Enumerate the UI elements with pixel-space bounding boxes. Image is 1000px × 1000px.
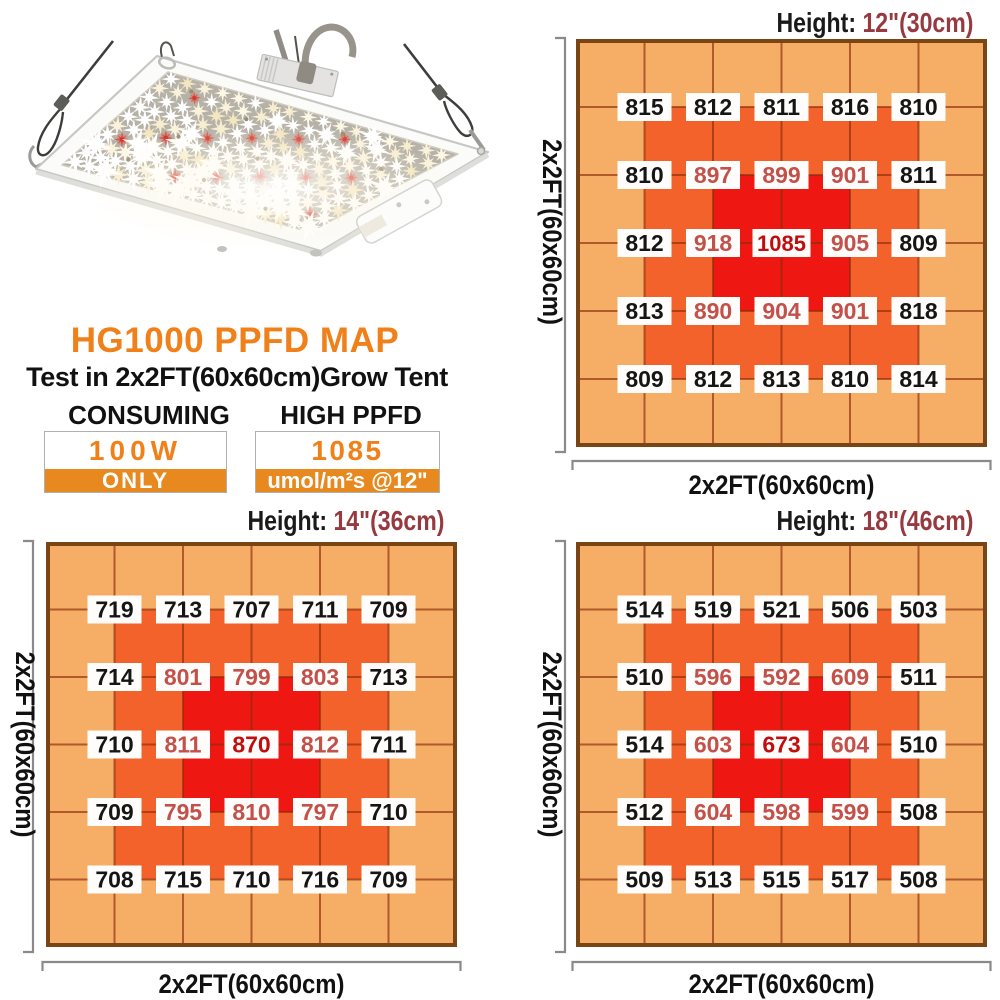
svg-text:904: 904	[762, 298, 801, 324]
svg-text:801: 801	[164, 664, 203, 690]
svg-text:711: 711	[370, 732, 407, 758]
svg-text:890: 890	[694, 298, 732, 324]
svg-text:714: 714	[95, 664, 134, 690]
svg-text:708: 708	[95, 867, 134, 893]
svg-text:508: 508	[899, 799, 938, 825]
svg-text:810: 810	[232, 799, 270, 825]
svg-text:711: 711	[301, 597, 338, 623]
svg-text:513: 513	[694, 867, 732, 893]
svg-text:604: 604	[831, 732, 870, 758]
svg-text:515: 515	[762, 867, 801, 893]
svg-text:810: 810	[625, 162, 663, 188]
svg-text:503: 503	[899, 597, 937, 623]
svg-text:716: 716	[301, 867, 339, 893]
svg-text:673: 673	[762, 732, 800, 758]
svg-text:710: 710	[369, 799, 407, 825]
svg-text:521: 521	[762, 597, 801, 623]
svg-text:812: 812	[694, 366, 732, 392]
svg-text:812: 812	[625, 230, 663, 256]
svg-text:713: 713	[369, 664, 407, 690]
svg-text:512: 512	[625, 799, 663, 825]
svg-text:897: 897	[694, 162, 732, 188]
svg-text:816: 816	[831, 94, 869, 120]
svg-text:812: 812	[301, 732, 339, 758]
svg-text:815: 815	[625, 94, 664, 120]
svg-text:599: 599	[831, 799, 869, 825]
svg-text:813: 813	[625, 298, 663, 324]
svg-text:901: 901	[831, 298, 870, 324]
svg-text:Height: 18"(46cm): Height: 18"(46cm)	[777, 505, 974, 536]
svg-text:514: 514	[625, 732, 664, 758]
svg-text:811: 811	[164, 732, 201, 758]
svg-text:905: 905	[831, 230, 870, 256]
svg-text:795: 795	[164, 799, 203, 825]
svg-text:596: 596	[694, 664, 732, 690]
svg-text:604: 604	[694, 799, 733, 825]
svg-text:810: 810	[831, 366, 869, 392]
svg-text:918: 918	[694, 230, 733, 256]
svg-text:Height: 12"(30cm): Height: 12"(30cm)	[777, 7, 974, 38]
svg-text:710: 710	[95, 732, 133, 758]
svg-text:2x2FT(60x60cm): 2x2FT(60x60cm)	[689, 969, 875, 999]
svg-text:2x2FT(60x60cm): 2x2FT(60x60cm)	[689, 470, 875, 500]
svg-text:517: 517	[831, 867, 869, 893]
svg-text:809: 809	[899, 230, 937, 256]
svg-text:709: 709	[369, 597, 407, 623]
svg-text:2x2FT(60x60cm): 2x2FT(60x60cm)	[537, 139, 567, 325]
svg-text:709: 709	[369, 867, 407, 893]
svg-text:Height: 14"(36cm): Height: 14"(36cm)	[248, 505, 445, 536]
svg-text:1085: 1085	[757, 231, 806, 256]
svg-text:592: 592	[762, 664, 800, 690]
svg-text:603: 603	[694, 732, 732, 758]
svg-text:710: 710	[232, 867, 270, 893]
svg-text:609: 609	[831, 664, 869, 690]
svg-text:814: 814	[899, 366, 938, 392]
svg-text:713: 713	[164, 597, 202, 623]
svg-text:508: 508	[899, 867, 938, 893]
svg-text:510: 510	[625, 664, 663, 690]
svg-text:707: 707	[232, 597, 270, 623]
svg-text:809: 809	[625, 366, 663, 392]
svg-text:506: 506	[831, 597, 869, 623]
svg-text:811: 811	[900, 162, 937, 188]
svg-text:2x2FT(60x60cm): 2x2FT(60x60cm)	[10, 652, 40, 838]
svg-text:899: 899	[762, 162, 800, 188]
svg-text:2x2FT(60x60cm): 2x2FT(60x60cm)	[537, 652, 567, 838]
svg-text:719: 719	[95, 597, 133, 623]
svg-text:2x2FT(60x60cm): 2x2FT(60x60cm)	[159, 969, 345, 999]
svg-text:514: 514	[625, 597, 664, 623]
svg-text:803: 803	[301, 664, 339, 690]
svg-text:519: 519	[694, 597, 732, 623]
svg-text:812: 812	[694, 94, 732, 120]
svg-text:598: 598	[762, 799, 801, 825]
svg-text:811: 811	[763, 94, 800, 120]
svg-text:901: 901	[831, 162, 870, 188]
svg-text:509: 509	[625, 867, 663, 893]
svg-text:510: 510	[899, 732, 937, 758]
svg-text:810: 810	[899, 94, 937, 120]
svg-text:797: 797	[301, 799, 339, 825]
svg-text:511: 511	[900, 664, 937, 690]
svg-text:709: 709	[95, 799, 133, 825]
svg-text:813: 813	[762, 366, 800, 392]
svg-text:799: 799	[232, 664, 270, 690]
svg-text:870: 870	[232, 732, 270, 758]
svg-text:715: 715	[164, 867, 203, 893]
svg-text:818: 818	[899, 298, 938, 324]
